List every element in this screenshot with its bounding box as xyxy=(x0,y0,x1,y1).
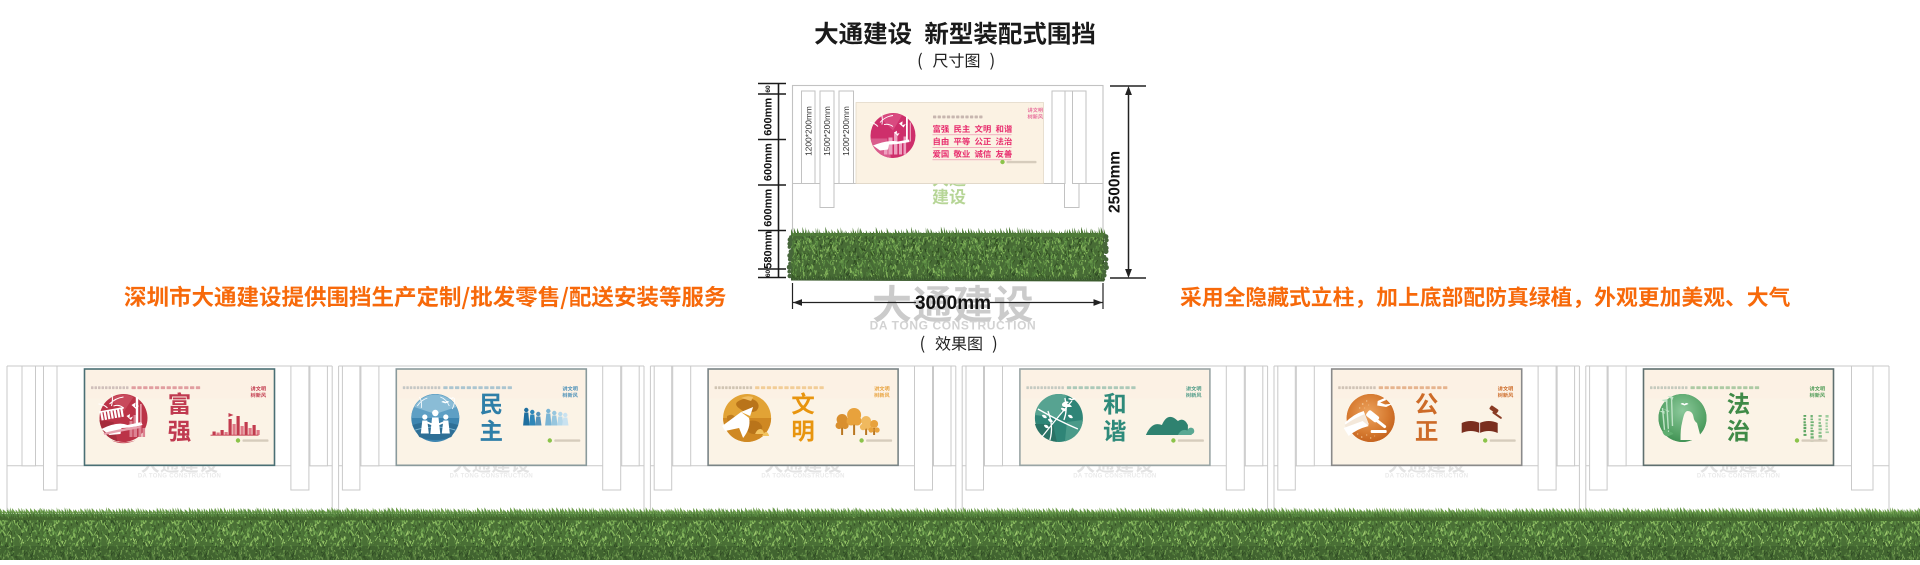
svg-text:1200*200mm: 1200*200mm xyxy=(803,106,813,156)
svg-text:DA TONG CONSTRUCTION: DA TONG CONSTRUCTION xyxy=(450,473,533,479)
svg-text:3000mm: 3000mm xyxy=(915,293,991,314)
svg-text:DA TONG CONSTRUCTION: DA TONG CONSTRUCTION xyxy=(138,473,221,479)
svg-text:60: 60 xyxy=(765,270,772,278)
svg-text:60: 60 xyxy=(765,85,772,93)
svg-text:DA TONG CONSTRUCTION: DA TONG CONSTRUCTION xyxy=(1385,473,1468,479)
svg-text:DA TONG CONSTRUCTION: DA TONG CONSTRUCTION xyxy=(870,319,1037,333)
svg-text:600mm: 600mm xyxy=(763,98,775,136)
svg-text:1500*200mm: 1500*200mm xyxy=(822,106,832,156)
svg-text:DA TONG CONSTRUCTION: DA TONG CONSTRUCTION xyxy=(1697,473,1780,479)
svg-text:600mm: 600mm xyxy=(763,189,775,227)
svg-text:1200*200mm: 1200*200mm xyxy=(841,106,851,156)
svg-text:580mm: 580mm xyxy=(763,231,775,269)
svg-text:600mm: 600mm xyxy=(763,143,775,181)
svg-text:DA TONG CONSTRUCTION: DA TONG CONSTRUCTION xyxy=(1073,473,1156,479)
svg-text:2500mm: 2500mm xyxy=(1107,151,1124,213)
svg-text:DA TONG CONSTRUCTION: DA TONG CONSTRUCTION xyxy=(761,473,844,479)
